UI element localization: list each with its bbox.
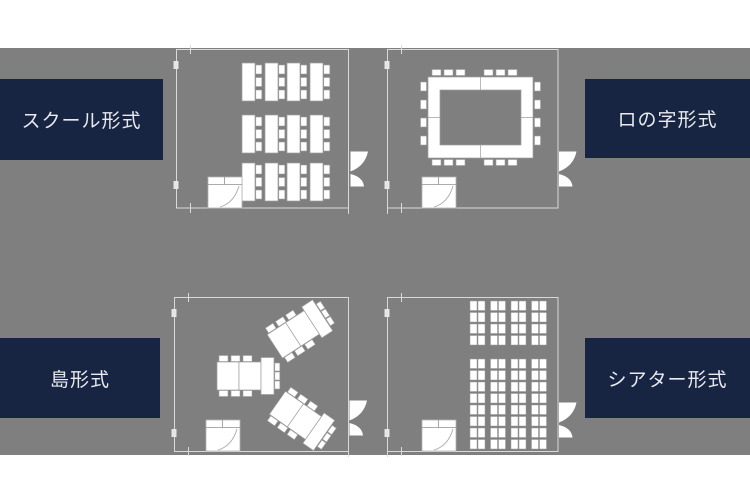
label-ro-no-ji-text: ロの字形式	[617, 105, 717, 132]
conference-table-ring	[421, 70, 541, 166]
floorplan-theater	[380, 290, 590, 458]
table-island-bottom	[266, 386, 341, 456]
table-island-middle	[217, 356, 280, 397]
floorplan-ro-no-ji	[380, 44, 590, 216]
floorplan-island	[170, 290, 380, 458]
label-island-layout: 島形式	[0, 338, 160, 418]
label-theater-text: シアター形式	[607, 365, 727, 392]
label-ro-no-ji-layout: ロの字形式	[585, 79, 750, 158]
label-island-text: 島形式	[50, 365, 110, 392]
floorplan-school	[170, 44, 380, 216]
table-island-top	[264, 295, 339, 364]
label-theater-layout: シアター形式	[585, 338, 750, 418]
label-school-layout: スクール形式	[0, 79, 163, 160]
meeting-room-layouts-section: スクール形式 ロの字形式 島形式 シアター形式	[0, 0, 750, 500]
label-school-text: スクール形式	[21, 106, 141, 133]
